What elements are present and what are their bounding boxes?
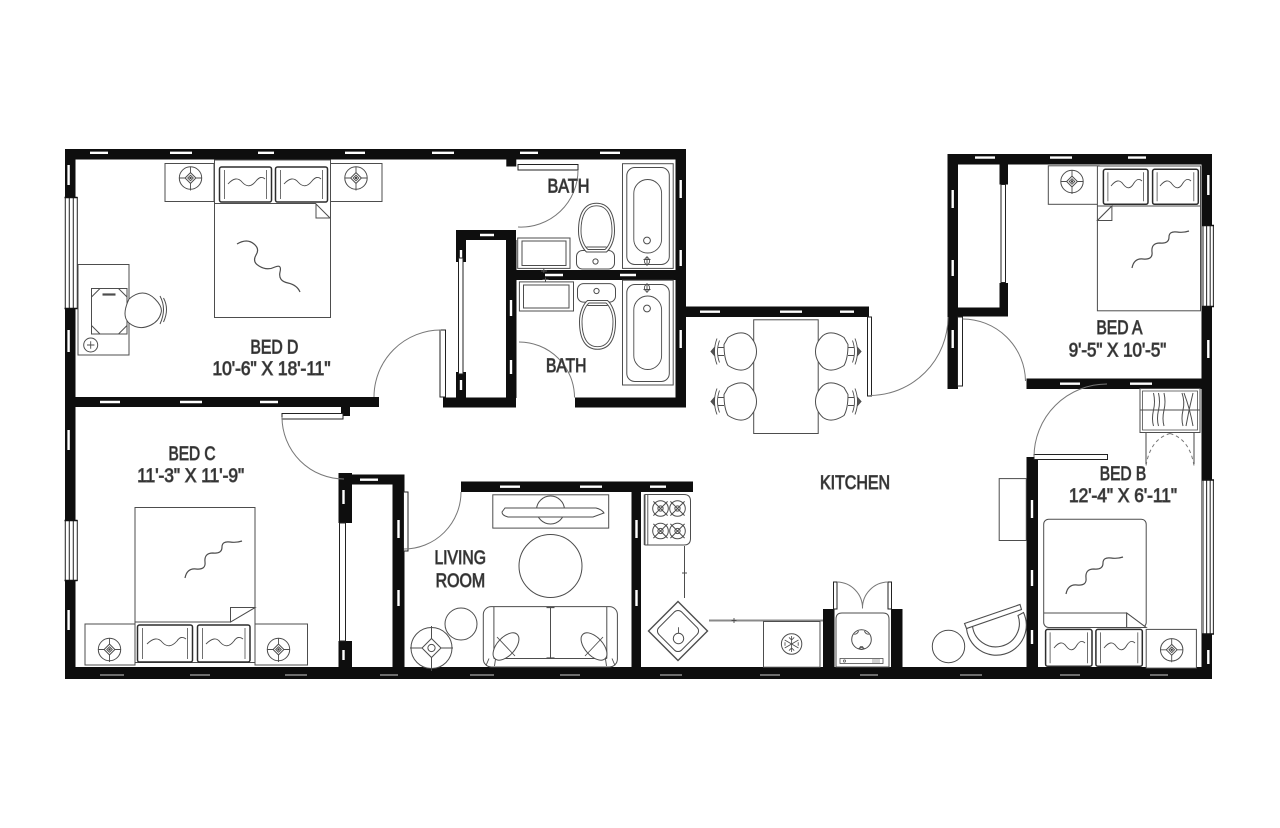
svg-text:LIVING: LIVING — [434, 547, 486, 569]
svg-text:9'-5" X 10'-5": 9'-5" X 10'-5" — [1069, 340, 1167, 362]
svg-text:12'-4" X 6'-11": 12'-4" X 6'-11" — [1069, 485, 1177, 507]
svg-text:BATH: BATH — [546, 355, 587, 377]
svg-text:BED C: BED C — [169, 443, 216, 465]
svg-text:BED D: BED D — [250, 337, 298, 359]
svg-text:10'-6" X 18'-11": 10'-6" X 18'-11" — [213, 358, 331, 380]
svg-text:KITCHEN: KITCHEN — [820, 472, 890, 494]
svg-text:BED B: BED B — [1100, 463, 1147, 485]
svg-text:11'-3" X 11'-9": 11'-3" X 11'-9" — [137, 465, 244, 487]
svg-text:ROOM: ROOM — [436, 570, 486, 592]
svg-text:BED A: BED A — [1096, 317, 1142, 339]
svg-text:BATH: BATH — [548, 175, 590, 197]
